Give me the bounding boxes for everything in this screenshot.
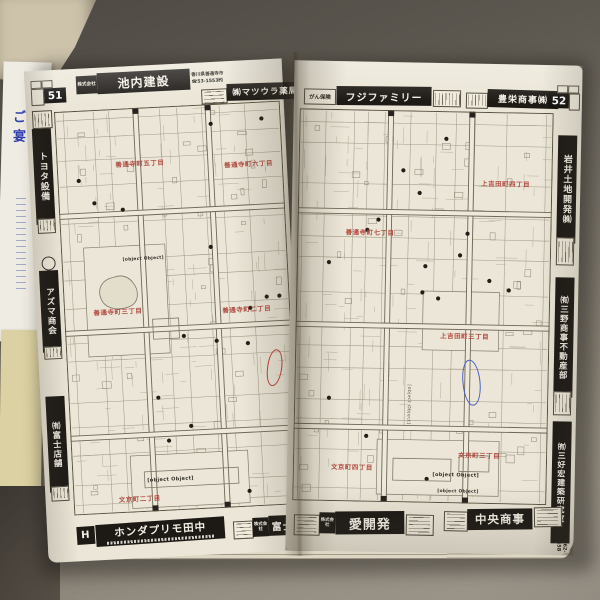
street-map-right <box>292 108 553 505</box>
ad-azuma-logo <box>41 256 56 271</box>
ad-miyoshi-phone: ☎62-5558 <box>555 537 567 555</box>
grid-ref-box <box>31 88 45 106</box>
ad-note-box <box>233 520 254 539</box>
honda-logo: H <box>77 526 95 544</box>
ad-ai-prefix: 株式会社 <box>320 513 335 533</box>
ad-phone-note <box>44 346 63 360</box>
page-number-tab: 51 <box>44 87 67 103</box>
ad-ikeuchi-kensetsu: 池内建設 <box>97 69 190 94</box>
ad-phone-note <box>51 486 70 502</box>
university-label: [object Object] <box>432 472 479 479</box>
district-label: 上吉田町三丁目 <box>440 331 489 341</box>
district-label: 善通寺町七丁目 <box>346 227 395 237</box>
ad-mino-shoji-fudosan: ㈲三野商事不動産部 <box>553 277 574 397</box>
grid-ref-box <box>569 93 580 110</box>
grid-ref-box <box>568 85 579 93</box>
ad-logo-box: 株式会社 <box>76 76 97 94</box>
ad-small-note <box>32 110 53 129</box>
ad-note-box <box>294 514 320 535</box>
ad-fuji-tenpo: ㈲富士店舗 <box>45 396 69 493</box>
ad-cancer-insurance-note: がん保険 <box>304 88 336 105</box>
ad-chuo-shoji: 中央商事 <box>468 509 532 530</box>
grid-ref-box <box>557 85 568 93</box>
flyer-text-1: ご宴 <box>8 110 27 148</box>
ad-honda-primo-tanaka: ホンダプリモ田中 <box>96 517 225 547</box>
page-number-tab: 52 <box>548 93 570 108</box>
map-left-area[interactable]: 善通寺町五丁目 善通寺町六丁目 善通寺町二丁目 善通寺町三丁目 文京町二丁目 [… <box>54 101 300 516</box>
map-page-left[interactable]: 51 株式会社 池内建設 香川県善通寺市 ☎53-1553㈹ ㈱マツウラ薬局 ト… <box>24 58 307 562</box>
road-name-label: [object Object] <box>405 385 411 425</box>
district-label: 文京町四丁目 <box>331 462 373 472</box>
ad-note-box <box>444 511 468 531</box>
district-label: 上吉田町四丁目 <box>481 178 530 188</box>
ad-note-text: がん保険 <box>309 92 331 100</box>
ad-fuji-prefix: 株式会社 <box>253 518 269 537</box>
ad-azuma-shokai: アズマ商会 <box>39 270 62 353</box>
ad-toyota-setsubi: トヨタ設備 <box>32 128 56 225</box>
flyer-small-print <box>16 196 26 292</box>
ad-note-box <box>201 88 228 104</box>
photo-of-map-book: ご宴 学生 51 株式会社 池内建設 香川県善通寺市 ☎53-1553㈹ ㈱マツ… <box>0 0 600 600</box>
ad-ai-kaihatsu: 愛開発 <box>336 511 404 533</box>
open-map-book[interactable]: 51 株式会社 池内建設 香川県善通寺市 ☎53-1553㈹ ㈱マツウラ薬局 ト… <box>28 46 586 569</box>
ad-phone-note <box>553 391 571 415</box>
ad-phone-note <box>37 218 56 234</box>
ad-note-box <box>406 514 434 536</box>
ad-smallprint <box>433 90 461 108</box>
district-label: 文京町三丁目 <box>458 450 500 460</box>
ad-matsuura-pharmacy: ㈱マツウラ薬局 <box>227 82 303 100</box>
ad-note-box <box>534 507 562 527</box>
ad-phone-note <box>556 237 575 265</box>
map-right-area[interactable]: 上吉田町四丁目 善通寺町七丁目 上吉田町三丁目 文京町四丁目 文京町三丁目 [o… <box>292 108 553 505</box>
junior-college-label: [object Object] <box>437 489 479 495</box>
ad-smallprint <box>466 92 488 108</box>
ad-iwai-tochi-kaihatsu: 岩井土地開発㈱ <box>556 135 577 243</box>
ad-fuji-family: フジファミリー <box>337 87 431 106</box>
map-page-right[interactable]: がん保険 フジファミリー 豊栄商事㈱ 52 岩井土地開発㈱ ㈲三野商事不動産部 … <box>285 60 582 555</box>
